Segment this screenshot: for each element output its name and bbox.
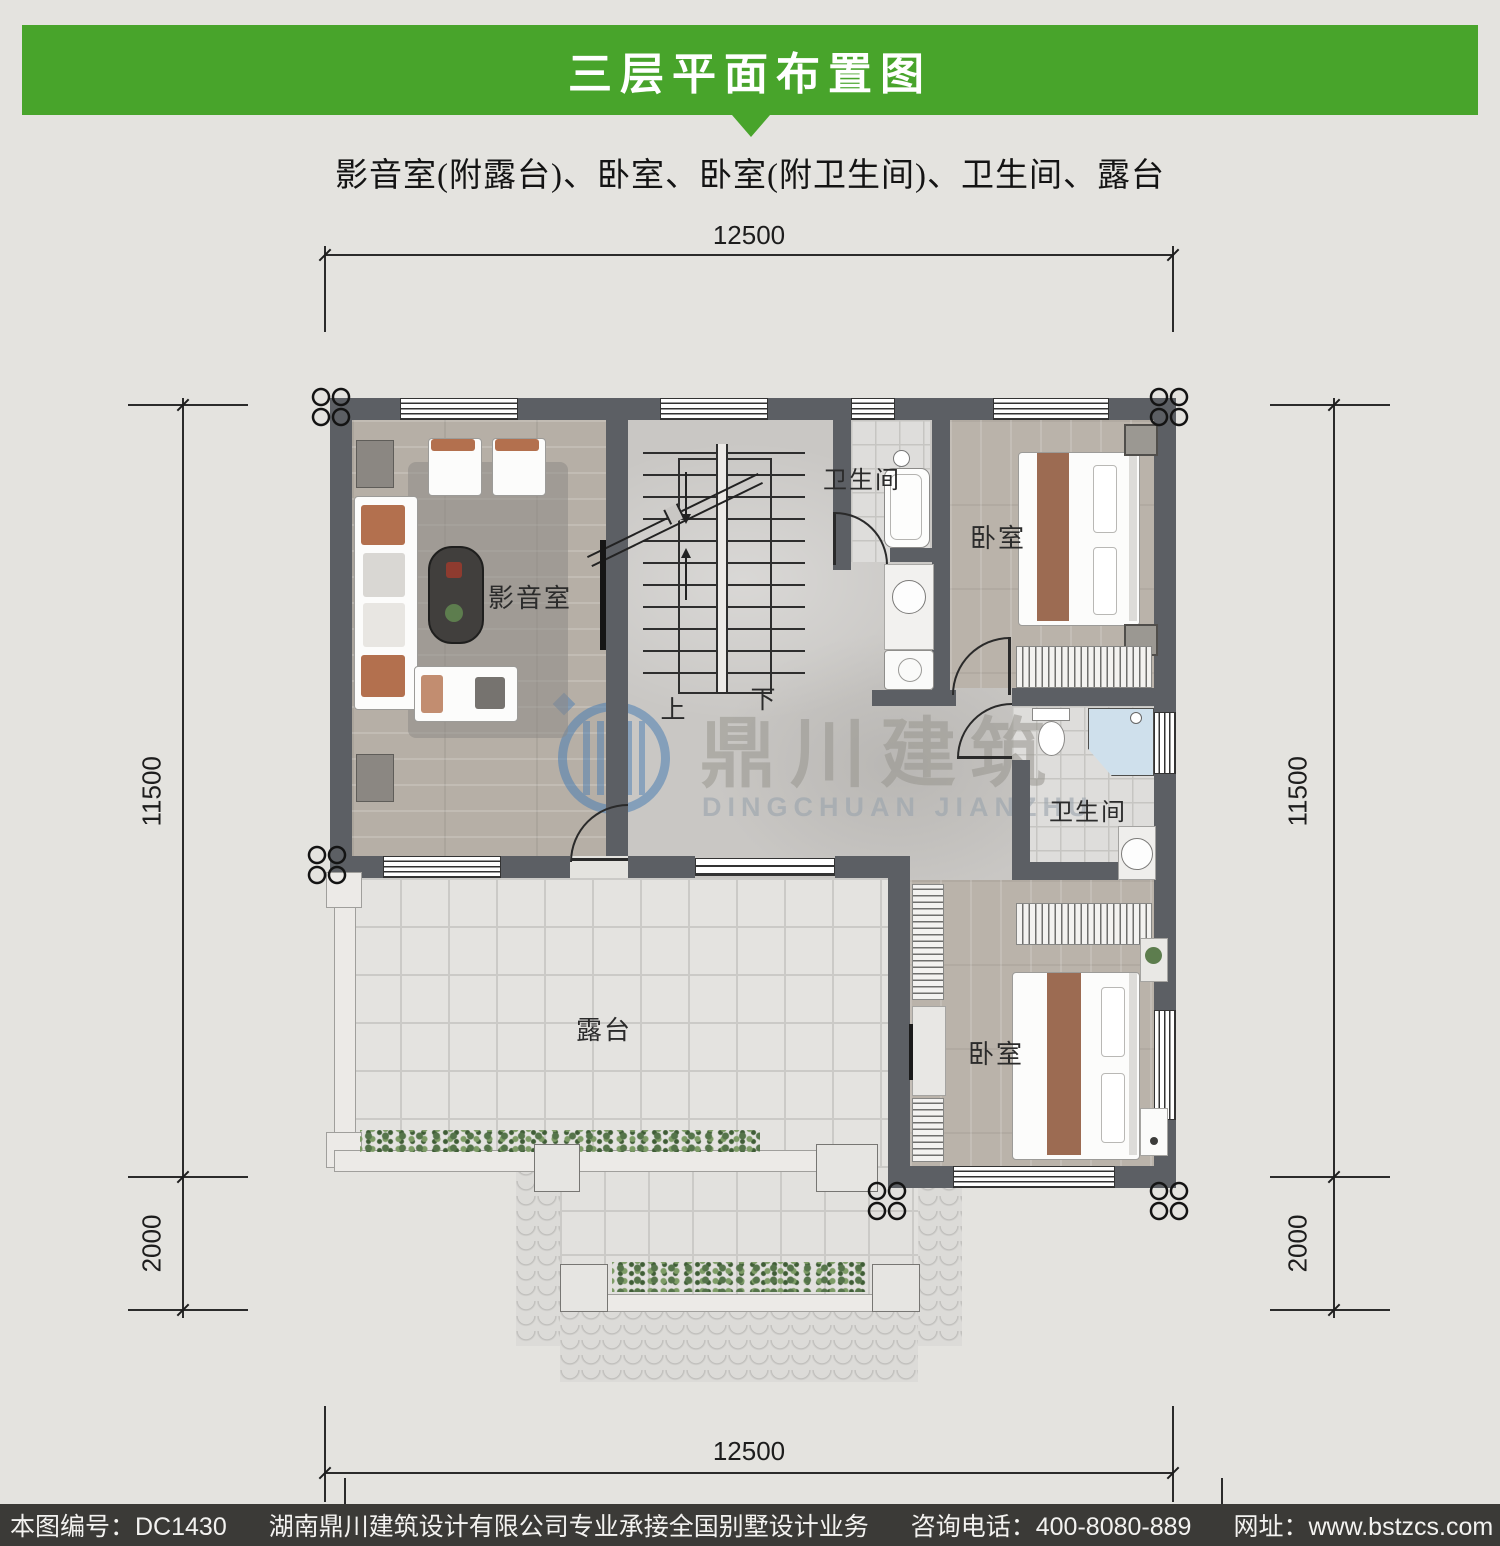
dim-ext-left-1 [128, 404, 248, 406]
paving-right [918, 1166, 962, 1346]
armchair-back [431, 439, 475, 451]
window-bath-mid-east [1154, 712, 1176, 774]
sofa-cushion [363, 603, 405, 647]
table-decor [446, 562, 462, 578]
terrace-parapet-west [334, 880, 356, 1168]
dim-ext-bottom-right [1172, 1406, 1174, 1502]
toilet-tank [1032, 708, 1070, 721]
headboard [1129, 453, 1137, 621]
closet-corridor-1 [912, 884, 944, 1000]
wardrobe-bedroom1 [1016, 646, 1152, 688]
label-media-room: 影音室 [470, 578, 590, 615]
label-bathroom-mid: 卫生间 [1030, 792, 1146, 827]
window-bedroom2-south [953, 1166, 1115, 1188]
footer-bar: 本图编号：DC1430 湖南鼎川建筑设计有限公司专业承接全国别墅设计业务 咨询电… [0, 1504, 1500, 1546]
washer-door [898, 658, 922, 682]
paving-bottom [560, 1310, 918, 1382]
toilet-bowl [1038, 721, 1065, 756]
footer-tick [344, 1478, 346, 1504]
nightstand-knob [1150, 1137, 1158, 1145]
tv-cabinet-bedroom2 [912, 1006, 946, 1096]
sofa [354, 496, 418, 710]
wall-bedroom1-west [932, 420, 950, 706]
bed-runner [1037, 453, 1069, 621]
dim-line-top [325, 254, 1173, 256]
stair-label-down: 下 [744, 680, 784, 716]
planter-lower-terrace [612, 1262, 866, 1292]
footer-company: 湖南鼎川建筑设计有限公司专业承接全国别墅设计业务 [269, 1507, 869, 1543]
pillow [1093, 547, 1117, 615]
tv-media-room [600, 540, 606, 650]
slider-hall-terrace [695, 858, 835, 876]
page-title-banner: 三层平面布置图 [22, 25, 1478, 115]
bench-pillow [475, 677, 505, 709]
footer-phone: 咨询电话：400-8080-889 [911, 1507, 1192, 1543]
stair-arrow-up-icon [681, 548, 691, 558]
pillow [1093, 465, 1117, 533]
pillar-lower-right [872, 1264, 920, 1312]
bed-runner [1047, 973, 1081, 1155]
dim-ext-top-right [1172, 246, 1174, 332]
side-table-top [356, 440, 394, 488]
footer-plan-no: 本图编号：DC1430 [10, 1507, 227, 1543]
window-stair-north [660, 398, 768, 420]
sofa-cushion [363, 553, 405, 597]
label-bedroom-top: 卧室 [958, 518, 1038, 555]
washbasin-mid [1121, 838, 1153, 870]
closet-corridor-2 [912, 1098, 944, 1162]
window-bedroom1-north [993, 398, 1109, 420]
room-list-subtitle: 影音室(附露台)、卧室、卧室(附卫生间)、卫生间、露台 [0, 148, 1500, 196]
wall-bath-mid-west [1012, 760, 1030, 862]
door-leaf-bath-top [833, 512, 836, 565]
tv-bedroom2 [909, 1024, 913, 1080]
column-symbol [1148, 1180, 1190, 1222]
dim-label-right-lower: 2000 [1283, 1209, 1314, 1279]
stair-arrow-line-2 [685, 556, 687, 600]
nightstand-bedroom2 [1140, 1108, 1168, 1156]
stair-rail [716, 444, 728, 692]
column-symbol [306, 844, 348, 886]
shower-head-icon [1130, 712, 1142, 724]
plant-icon [1145, 947, 1162, 964]
door-leaf-bath-mid [957, 756, 1012, 759]
stair-arrow-down-icon [681, 514, 691, 524]
paving-left [516, 1166, 560, 1346]
wardrobe-bedroom2-north [1016, 903, 1152, 945]
headboard [1129, 973, 1137, 1155]
wall-media-south-2 [501, 856, 570, 878]
banner-pointer-icon [732, 115, 770, 137]
stair-arrow-line-1 [685, 472, 687, 516]
wall-bath-top-south [890, 548, 932, 562]
plant-stand [1140, 938, 1168, 982]
dim-line-bottom [325, 1472, 1173, 1474]
pillar-small [534, 1144, 580, 1192]
dim-ext-left-3 [128, 1309, 248, 1311]
wall-hall-corridor [872, 690, 956, 706]
dim-label-left-main: 11500 [137, 757, 168, 827]
dim-ext-top-left [324, 246, 326, 332]
pillow [1101, 987, 1125, 1057]
table-plant [445, 604, 463, 622]
dim-label-right-main: 11500 [1283, 757, 1314, 827]
dim-ext-left-2 [128, 1176, 248, 1178]
armchair [428, 438, 482, 496]
door-leaf-media [572, 858, 628, 861]
window-bath-north [851, 398, 895, 420]
nightstand [1124, 424, 1158, 456]
media-bench [414, 666, 518, 722]
sofa-cushion [361, 505, 405, 545]
column-symbol [1148, 386, 1190, 428]
footer-tick [1221, 1478, 1223, 1504]
wall-mid-vertical [888, 856, 910, 1188]
dim-label-left-lower: 2000 [137, 1209, 168, 1279]
dim-line-right [1333, 398, 1335, 1318]
window-bedroom2-east [1154, 1010, 1176, 1120]
dim-ext-bottom-left [324, 1406, 326, 1502]
page-title: 三层平面布置图 [568, 38, 932, 102]
label-bathroom-top: 卫生间 [812, 460, 912, 495]
armchair-back [495, 439, 539, 451]
window-media-south [383, 856, 501, 878]
label-terrace: 露台 [554, 1010, 654, 1047]
wall-media-hall [606, 420, 628, 856]
bench-throw [421, 675, 443, 713]
wall-bedroom1-south [1012, 688, 1154, 706]
window-media-north [400, 398, 518, 420]
washbasin [892, 580, 926, 614]
column-symbol [310, 386, 352, 428]
footer-website: 网址：www.bstzcs.com [1233, 1507, 1493, 1543]
door-leaf-bedroom1 [1008, 637, 1011, 695]
pillow [1101, 1073, 1125, 1143]
wall-hall-south-1 [628, 856, 695, 878]
label-bedroom-bottom: 卧室 [946, 1034, 1046, 1071]
lower-terrace-parapet [606, 1294, 874, 1312]
column-symbol [866, 1180, 908, 1222]
dim-label-bottom: 12500 [689, 1436, 809, 1467]
washer [884, 650, 934, 690]
armchair [492, 438, 546, 496]
side-table-bottom [356, 754, 394, 802]
dim-line-left [182, 398, 184, 1318]
stair-label-up: 上 [654, 690, 694, 726]
pillar-lower-left [560, 1264, 608, 1312]
wall-west [330, 398, 352, 878]
sofa-cushion [361, 655, 405, 697]
dim-label-top: 12500 [689, 220, 809, 251]
floor-plan-page: 三层平面布置图 影音室(附露台)、卧室、卧室(附卫生间)、卫生间、露台 1250… [0, 0, 1500, 1546]
